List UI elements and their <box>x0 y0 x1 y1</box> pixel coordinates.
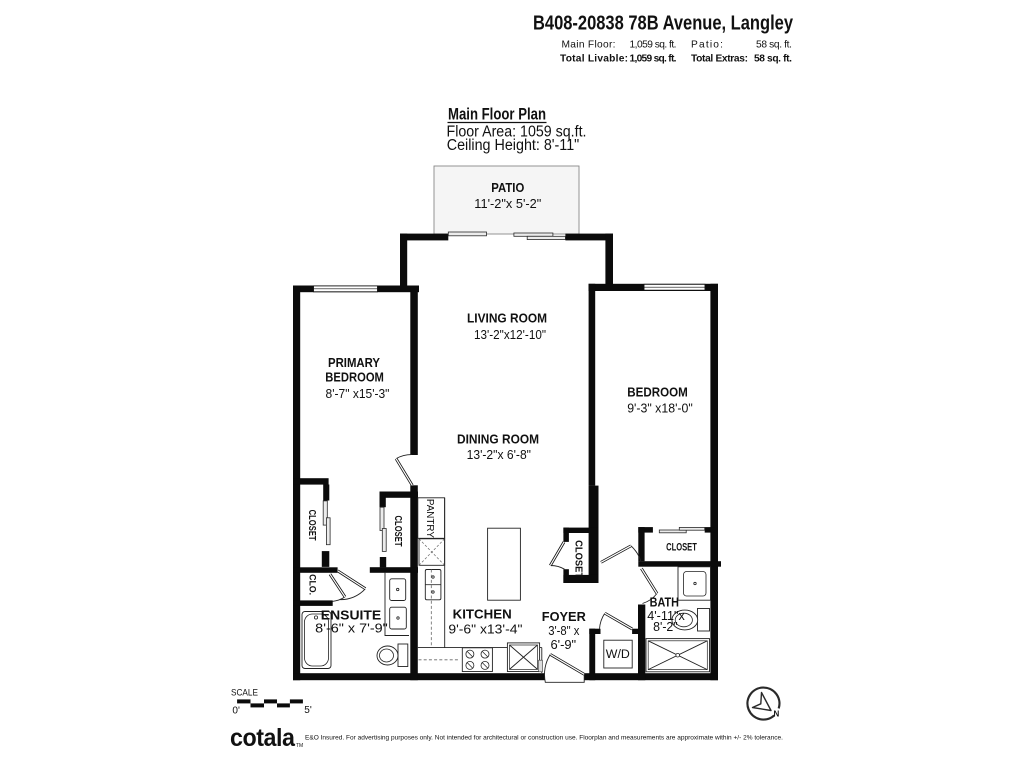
svg-text:9'-6" x13'-4": 9'-6" x13'-4" <box>448 622 523 637</box>
svg-text:Total Livable:: Total Livable: <box>560 54 628 65</box>
svg-text:Patio:: Patio: <box>691 40 723 51</box>
svg-text:B408-20838 78B Avenue, Langley: B408-20838 78B Avenue, Langley <box>533 13 794 35</box>
svg-text:PRIMARY: PRIMARY <box>328 356 381 370</box>
svg-text:Ceiling Height: 8'-11": Ceiling Height: 8'-11" <box>447 137 580 154</box>
svg-text:Total Extras:: Total Extras: <box>691 54 748 65</box>
svg-text:8'-7" x15'-3": 8'-7" x15'-3" <box>326 386 390 401</box>
svg-text:E&O Insured. For advertising p: E&O Insured. For advertising purposes on… <box>305 734 783 741</box>
svg-text:FOYER: FOYER <box>542 610 586 624</box>
svg-text:6'-9": 6'-9" <box>550 637 576 652</box>
svg-text:58 sq. ft.: 58 sq. ft. <box>754 54 792 65</box>
svg-text:CLOSET: CLOSET <box>666 542 697 554</box>
svg-text:BEDROOM: BEDROOM <box>325 371 384 385</box>
svg-text:8'-6" x 7'-9": 8'-6" x 7'-9" <box>315 621 388 636</box>
svg-text:3'-8" x: 3'-8" x <box>548 623 580 638</box>
svg-text:CLOSET: CLOSET <box>392 516 403 547</box>
svg-text:W/D: W/D <box>606 649 630 661</box>
svg-text:Main Floor Plan: Main Floor Plan <box>448 105 546 124</box>
svg-text:13'-2"x 6'-8": 13'-2"x 6'-8" <box>467 447 532 462</box>
svg-text:CLOSET: CLOSET <box>306 510 317 541</box>
svg-text:N: N <box>774 710 780 719</box>
svg-text:9'-3" x18'-0": 9'-3" x18'-0" <box>627 400 693 415</box>
svg-text:PANTRY: PANTRY <box>424 499 436 538</box>
svg-text:CLOSET: CLOSET <box>573 540 585 579</box>
svg-text:BEDROOM: BEDROOM <box>627 386 688 400</box>
svg-text:CLO.: CLO. <box>306 574 317 595</box>
svg-text:58 sq. ft.: 58 sq. ft. <box>756 40 792 51</box>
svg-text:LIVING ROOM: LIVING ROOM <box>467 312 547 326</box>
svg-text:11'-2"x 5'-2": 11'-2"x 5'-2" <box>474 197 541 211</box>
svg-text:Main Floor:: Main Floor: <box>562 40 616 51</box>
svg-text:1,059 sq. ft.: 1,059 sq. ft. <box>630 40 677 51</box>
svg-text:1,059 sq. ft.: 1,059 sq. ft. <box>630 54 677 65</box>
svg-text:SCALE: SCALE <box>231 688 258 699</box>
svg-text:TM: TM <box>296 743 303 749</box>
svg-text:PATIO: PATIO <box>491 181 524 195</box>
svg-text:DINING ROOM: DINING ROOM <box>457 432 539 446</box>
svg-text:0': 0' <box>232 706 240 717</box>
svg-text:13'-2"x12'-10": 13'-2"x12'-10" <box>474 327 546 342</box>
svg-text:5': 5' <box>304 705 312 716</box>
svg-text:KITCHEN: KITCHEN <box>453 607 512 621</box>
svg-text:8'-2": 8'-2" <box>653 619 678 634</box>
svg-text:cotala: cotala <box>230 724 296 752</box>
